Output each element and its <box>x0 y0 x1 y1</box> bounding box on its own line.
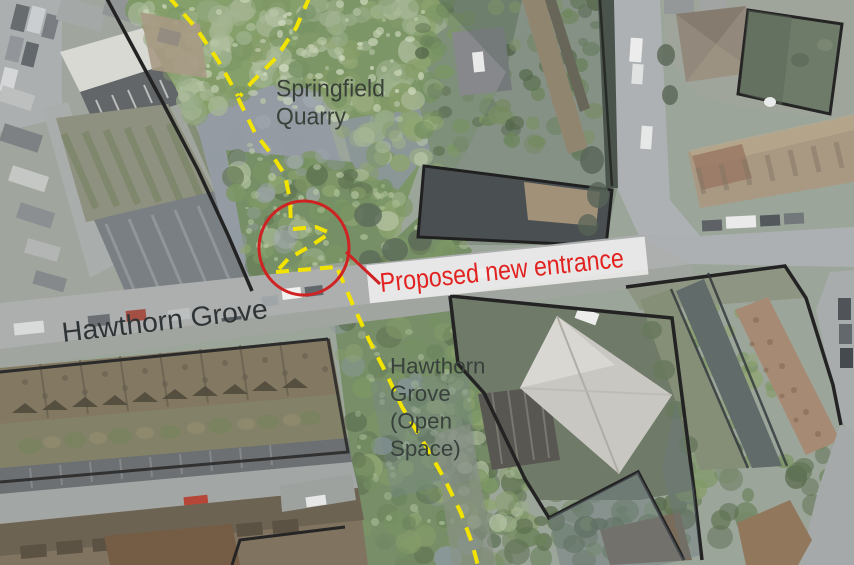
svg-text:(Open: (Open <box>390 409 452 434</box>
svg-text:Hawthorn: Hawthorn <box>390 354 485 379</box>
svg-text:Grove: Grove <box>390 381 451 406</box>
svg-text:Quarry: Quarry <box>276 104 346 131</box>
svg-text:Springfield: Springfield <box>276 76 385 103</box>
svg-text:Space): Space) <box>390 436 461 461</box>
